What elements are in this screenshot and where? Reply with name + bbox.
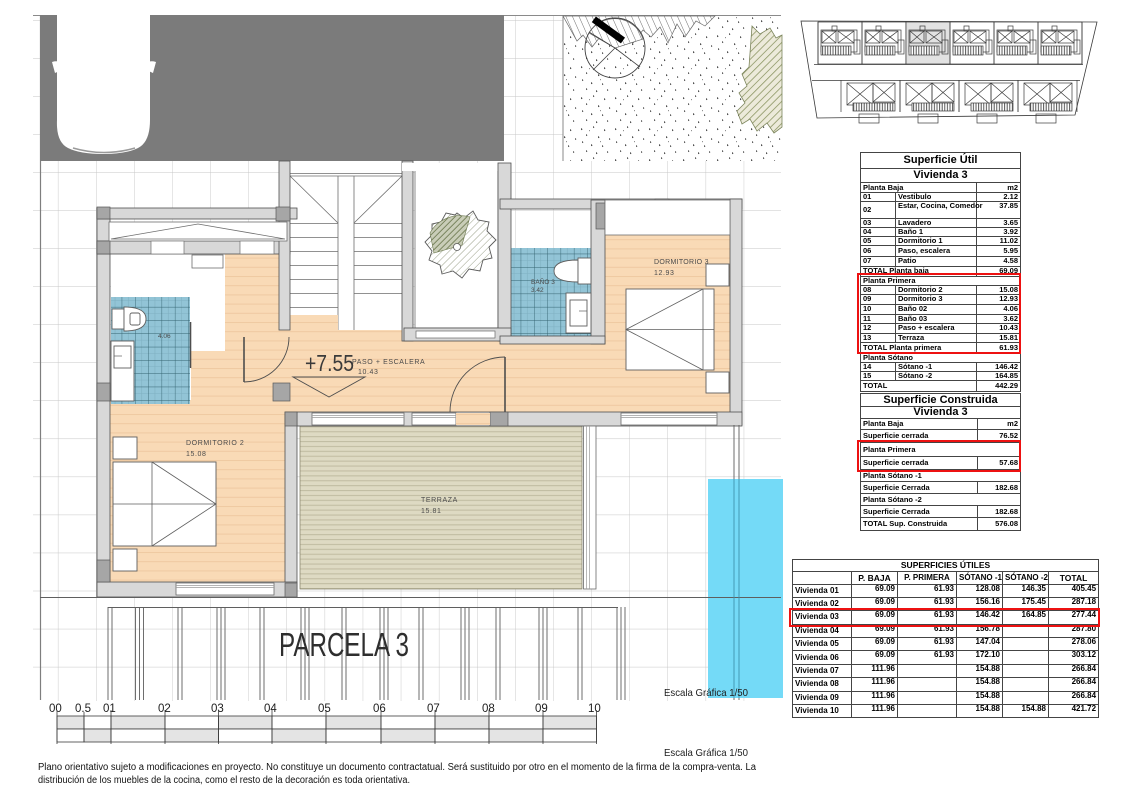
svg-text:10.43: 10.43 — [358, 369, 379, 376]
svg-text:Plano orientativo sujeto a mod: Plano orientativo sujeto a modificacione… — [38, 762, 756, 773]
svg-text:BAÑO 3: BAÑO 3 — [531, 277, 555, 286]
svg-text:DORMITORIO 3: DORMITORIO 3 — [654, 259, 709, 266]
svg-text:04: 04 — [264, 703, 277, 715]
svg-text:05: 05 — [318, 703, 331, 715]
svg-text:03: 03 — [211, 703, 224, 715]
svg-text:0.5: 0.5 — [75, 703, 91, 715]
svg-text:07: 07 — [427, 703, 440, 715]
svg-text:4.06: 4.06 — [158, 333, 171, 340]
svg-text:09: 09 — [535, 703, 548, 715]
svg-text:3.42: 3.42 — [531, 287, 544, 294]
svg-text:00: 00 — [49, 703, 62, 715]
svg-text:Escala Gráfica 1/50: Escala Gráfica 1/50 — [664, 687, 748, 699]
svg-text:TERRAZA: TERRAZA — [421, 497, 458, 504]
svg-text:01: 01 — [103, 703, 116, 715]
svg-text:distribución de los muebles de: distribución de los muebles de la cocina… — [38, 775, 410, 785]
svg-text:PASO + ESCALERA: PASO + ESCALERA — [352, 359, 425, 366]
svg-text:Escala Gráfica 1/50: Escala Gráfica 1/50 — [664, 747, 748, 759]
svg-text:PARCELA 3: PARCELA 3 — [279, 627, 409, 664]
svg-text:+7.55: +7.55 — [305, 350, 354, 376]
svg-text:02: 02 — [158, 703, 171, 715]
svg-text:10: 10 — [588, 703, 601, 715]
svg-text:06: 06 — [373, 703, 386, 715]
svg-text:DORMITORIO 2: DORMITORIO 2 — [186, 440, 244, 447]
svg-text:15.81: 15.81 — [421, 508, 442, 515]
svg-text:08: 08 — [482, 703, 495, 715]
svg-text:12.93: 12.93 — [654, 270, 675, 277]
svg-text:15.08: 15.08 — [186, 451, 207, 458]
